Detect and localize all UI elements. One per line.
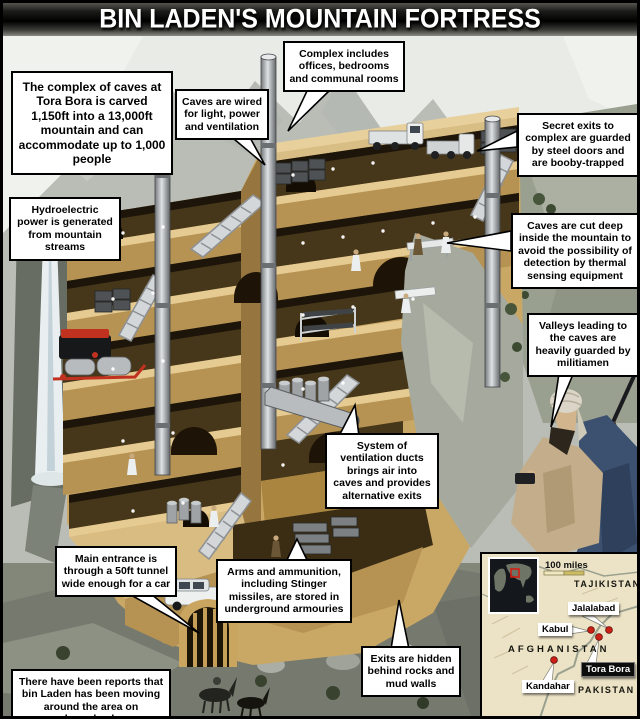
map-country-afghanistan: AFGHANISTAN <box>508 644 609 655</box>
callout-hydro: Hydroelectric power is generated from mo… <box>9 197 121 261</box>
callout-secret-exits: Secret exits to complex are guarded by s… <box>517 113 639 177</box>
map-scale-label: 100 miles <box>545 560 588 571</box>
callout-main-entrance: Main entrance is through a 50ft tunnel w… <box>55 546 177 597</box>
map-label-kandahar: Kandahar <box>522 680 574 693</box>
callout-includes: Complex includes offices, bedrooms and c… <box>283 41 405 92</box>
map-country-tajikistan: TAJIKISTAN <box>574 579 640 589</box>
callout-cut-deep: Caves are cut deep inside the mountain t… <box>511 213 639 289</box>
callout-arms: Arms and ammunition, including Stinger m… <box>216 559 352 623</box>
callout-complex: The complex of caves at Tora Bora is car… <box>11 71 173 175</box>
page-title: BIN LADEN'S MOUNTAIN FORTRESS <box>99 4 541 35</box>
locator-map: 100 miles TAJIKISTAN AFGHANISTAN PAKISTA… <box>480 552 640 719</box>
callout-horseback: There have been reports that bin Laden h… <box>11 669 171 719</box>
map-label-tora-bora: Tora Bora <box>581 662 635 677</box>
callout-ventilation: System of ventilation ducts brings air i… <box>325 433 439 509</box>
map-label-jalalabad: Jalalabad <box>568 602 619 615</box>
map-label-kabul: Kabul <box>538 623 572 636</box>
scale-bar <box>544 571 584 575</box>
title-bar: BIN LADEN'S MOUNTAIN FORTRESS <box>3 3 637 36</box>
callout-exits-hidden: Exits are hidden behind rocks and mud wa… <box>361 646 461 697</box>
callout-valleys: Valleys leading to the caves are heavily… <box>527 313 639 377</box>
callout-wired: Caves are wired for light, power and ven… <box>175 89 269 140</box>
map-country-pakistan: PAKISTAN <box>578 685 635 695</box>
infographic: BIN LADEN'S MOUNTAIN FORTRESS The comple… <box>0 0 640 719</box>
world-inset <box>489 558 538 613</box>
